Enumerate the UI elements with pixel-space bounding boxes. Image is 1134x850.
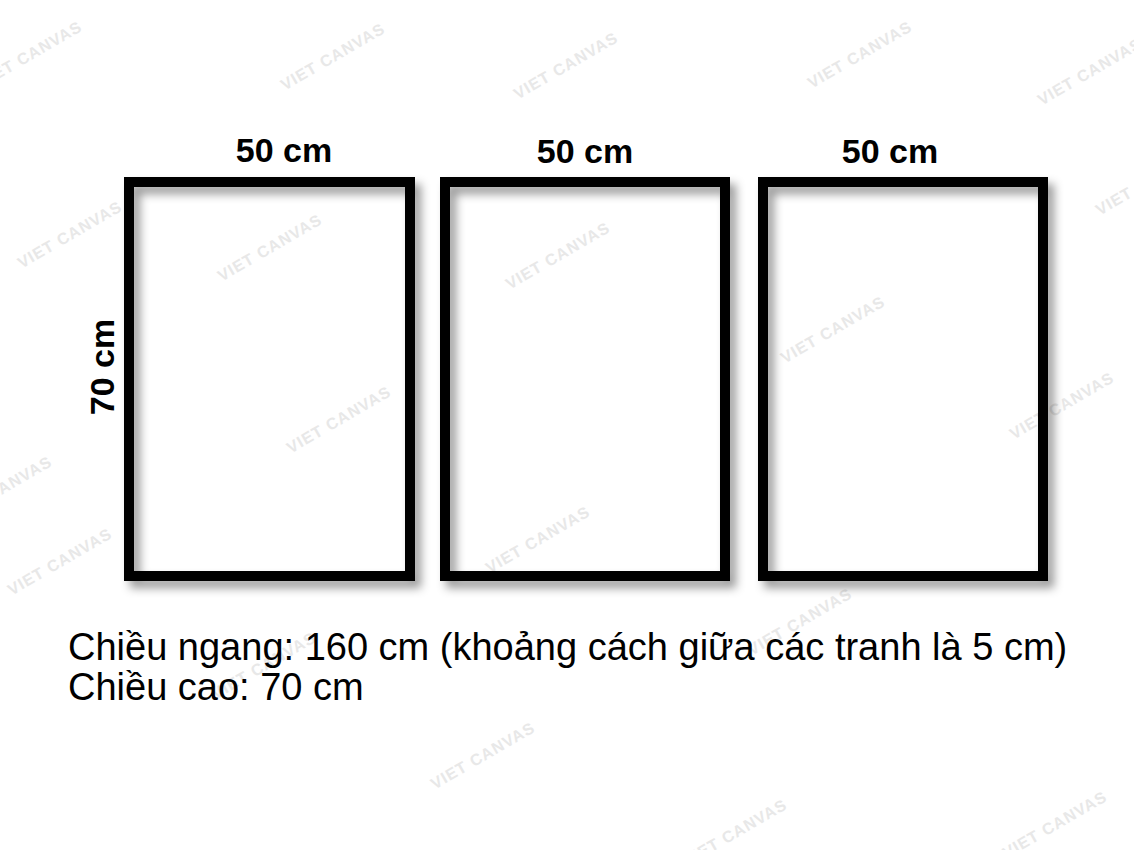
- watermark-text: VIET CANVAS: [5, 525, 116, 599]
- watermark-text: VIET CANVAS: [0, 18, 85, 92]
- watermark-text: VIET CANVAS: [680, 796, 791, 850]
- canvas-frame-1: [124, 177, 415, 581]
- watermark-text: VIET CANVAS: [805, 18, 916, 92]
- width-label-3: 50 cm: [842, 132, 938, 171]
- watermark-text: VIET CANVAS: [15, 198, 126, 272]
- caption: Chiều ngang: 160 cm (khoảng cách giữa cá…: [68, 627, 1067, 707]
- width-label-1: 50 cm: [236, 131, 332, 170]
- height-label: 70 cm: [83, 319, 122, 415]
- width-label-2: 50 cm: [537, 132, 633, 171]
- watermark-text: VIET CANVAS: [511, 29, 622, 103]
- watermark-text: VIET CANVAS: [278, 20, 389, 94]
- watermark-text: VIET CANVAS: [428, 719, 539, 793]
- caption-line-2: Chiều cao: 70 cm: [68, 667, 1067, 707]
- canvas-frame-3: [758, 177, 1048, 581]
- watermark-text: VIET CANVAS: [1093, 145, 1134, 219]
- canvas-frame-2: [440, 177, 730, 581]
- watermark-text: VIET CANVAS: [1035, 35, 1134, 109]
- watermark-text: VIET CANVAS: [0, 453, 55, 527]
- caption-line-1: Chiều ngang: 160 cm (khoảng cách giữa cá…: [68, 627, 1067, 667]
- watermark-text: VIET CANVAS: [1000, 788, 1111, 850]
